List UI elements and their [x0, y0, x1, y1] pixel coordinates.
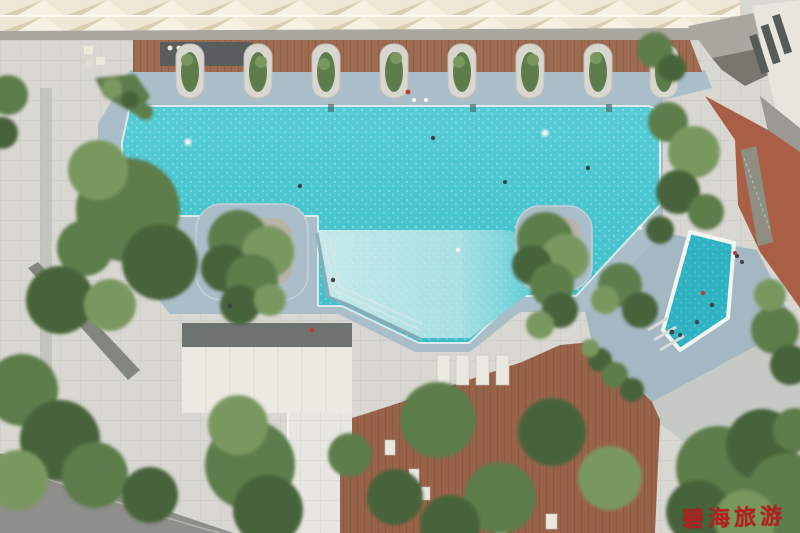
daybed-mat [160, 42, 252, 66]
scene-canvas [0, 0, 800, 533]
watermark-text: 碧海旅游 [681, 498, 798, 533]
upper-wood-deck [84, 40, 702, 98]
aerial-pool-photo: 碧海旅游 [0, 0, 800, 533]
sawtooth-roof [0, 0, 740, 40]
garden-wall [40, 88, 52, 388]
